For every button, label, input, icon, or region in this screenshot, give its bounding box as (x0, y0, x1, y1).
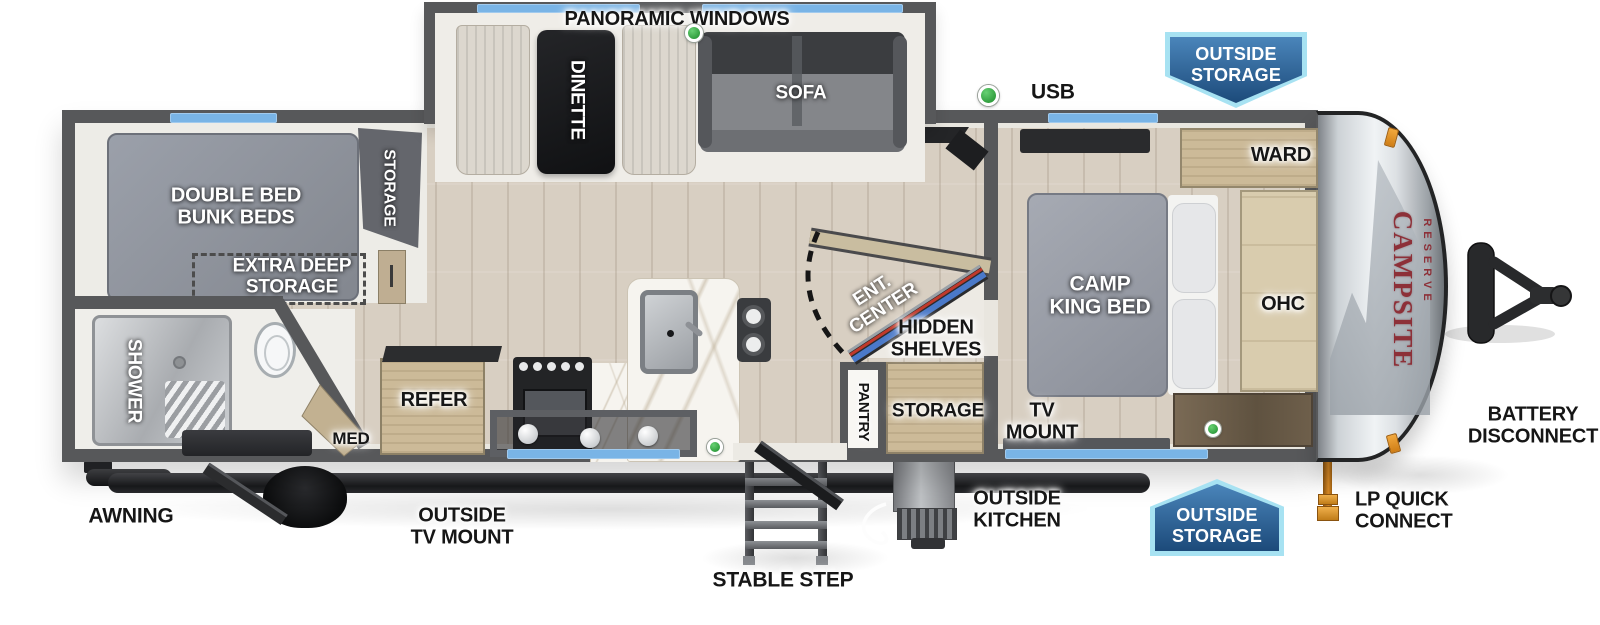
window-strip (1048, 113, 1158, 123)
burner-icon (742, 305, 765, 328)
tv-mount-label: TV MOUNT (1006, 400, 1078, 443)
outside-tv-mount-label: OUTSIDE TV MOUNT (411, 505, 514, 548)
bracket-knob (518, 424, 538, 444)
outside-storage-badge-bottom: OUTSIDE STORAGE (1150, 479, 1284, 556)
dinette-bench (622, 25, 696, 175)
hitch-coupler (1530, 287, 1558, 304)
usb-dot (685, 24, 703, 42)
badge-top-line1: OUTSIDE (1165, 44, 1307, 65)
camp-king-bed-label: CAMP KING BED (1049, 273, 1150, 318)
tv-mount-line2: MOUNT (1006, 422, 1078, 444)
stable-step-label: STABLE STEP (713, 570, 854, 593)
usb-dot (707, 439, 723, 455)
pillow (1172, 203, 1216, 293)
refer-label: REFER (401, 390, 468, 412)
step-rung (745, 478, 827, 486)
outside-tv-line1: OUTSIDE (411, 505, 514, 527)
battery-disconnect-label: BATTERY DISCONNECT (1468, 404, 1598, 447)
panoramic-windows-label: PANORAMIC WINDOWS (564, 9, 789, 31)
badge-top-line2: STORAGE (1165, 65, 1307, 86)
ward-label: WARD (1251, 145, 1311, 167)
nightstand (378, 250, 406, 304)
overhead-cabinet-column (1240, 190, 1318, 392)
outside-kitchen-unit (893, 458, 955, 512)
burner-icon (742, 333, 765, 356)
bedroom-tv-panel (1020, 129, 1150, 153)
camp-king-line1: CAMP (1049, 273, 1150, 296)
step-rung (745, 500, 827, 508)
badge-bottom-line1: OUTSIDE (1150, 505, 1284, 526)
bedroom-divider-wall (984, 123, 998, 449)
kitchen-sink (640, 290, 698, 374)
usb-legend-dot (978, 85, 999, 106)
sofa-back (700, 32, 905, 74)
bracket-knob (580, 428, 600, 448)
bunk-bed-label-line2: BUNK BEDS (171, 207, 301, 229)
outside-kitchen-base (911, 538, 945, 549)
window-strip (1005, 449, 1208, 459)
hidden-shelves-label: HIDDEN SHELVES (891, 317, 981, 360)
extra-deep-storage-label: EXTRA DEEP STORAGE (233, 256, 352, 297)
bath-wall (75, 296, 283, 309)
extra-deep-line2: STORAGE (233, 277, 352, 298)
lp-fitting (1317, 506, 1339, 521)
dinette-label: DINETTE (566, 60, 587, 140)
toilet (254, 322, 296, 378)
awning-label: AWNING (88, 506, 173, 529)
floorplan-canvas: CAMPSITE RESERVE (0, 0, 1600, 625)
hidden-shelves-line2: SHELVES (891, 339, 981, 361)
brand-secondary: RESERVE (1409, 202, 1433, 322)
bedroom-doorway (984, 300, 998, 356)
outside-tv-line2: TV MOUNT (411, 527, 514, 549)
refrigerator-top (382, 346, 502, 362)
sofa-label: SOFA (776, 84, 827, 105)
lp-fitting (1318, 494, 1338, 505)
bedroom-dresser (1173, 393, 1313, 447)
hitch-ball (1551, 286, 1571, 306)
pantry-label: PANTRY (855, 383, 871, 442)
lp-line2: CONNECT (1355, 511, 1453, 533)
usb-dot (1205, 421, 1221, 437)
shower-label: SHOWER (123, 339, 144, 423)
bracket-knob (638, 426, 658, 446)
dinette-bench (456, 25, 530, 175)
step-foot (816, 556, 828, 565)
hitch-shadow (1445, 325, 1555, 343)
usb-legend-label: USB (1031, 82, 1075, 105)
outside-kitchen-line2: KITCHEN (973, 510, 1061, 532)
outside-kitchen-line1: OUTSIDE (973, 488, 1061, 510)
entry-door-sill (733, 443, 847, 460)
pillow (1172, 299, 1216, 389)
sofa-front (700, 130, 905, 152)
camp-king-line2: KING BED (1049, 296, 1150, 319)
outside-kitchen-grill (897, 508, 957, 540)
battery-line2: DISCONNECT (1468, 426, 1598, 448)
hitch-crossbar (1468, 243, 1494, 343)
ohc-label: OHC (1261, 294, 1305, 316)
lp-quick-connect-label: LP QUICK CONNECT (1355, 489, 1453, 532)
med-label: MED (332, 430, 369, 448)
extra-deep-line1: EXTRA DEEP (233, 256, 352, 277)
sofa-arm (893, 36, 907, 148)
shower (92, 315, 232, 446)
bunk-storage-label: STORAGE (380, 149, 397, 226)
window-strip (170, 113, 277, 123)
hitch-arm (1494, 298, 1540, 324)
battery-line1: BATTERY (1468, 404, 1598, 426)
window-strip (507, 449, 680, 459)
shower-drain (173, 356, 186, 369)
bunk-bed-label: DOUBLE BED BUNK BEDS (171, 185, 301, 228)
step-foot (743, 556, 755, 565)
badge-top-text: OUTSIDE STORAGE (1165, 44, 1307, 85)
lp-line1: LP QUICK (1355, 489, 1453, 511)
sofa-cushion-divider (792, 36, 802, 126)
outside-kitchen-label: OUTSIDE KITCHEN (973, 488, 1061, 531)
wheel (263, 466, 347, 528)
bath-vanity (182, 430, 312, 456)
outside-storage-badge-top: OUTSIDE STORAGE (1165, 32, 1307, 108)
step-rung (745, 541, 827, 549)
tv-mount-line1: TV (1006, 400, 1078, 422)
bunk-bed-label-line1: DOUBLE BED (171, 185, 301, 207)
hitch-arm (1494, 262, 1540, 292)
step-rung (745, 521, 827, 529)
badge-bottom-text: OUTSIDE STORAGE (1150, 505, 1284, 546)
badge-bottom-line2: STORAGE (1150, 526, 1284, 547)
sofa-arm (698, 36, 712, 148)
hidden-shelves-line1: HIDDEN (891, 317, 981, 339)
mid-storage-label: STORAGE (892, 402, 984, 423)
